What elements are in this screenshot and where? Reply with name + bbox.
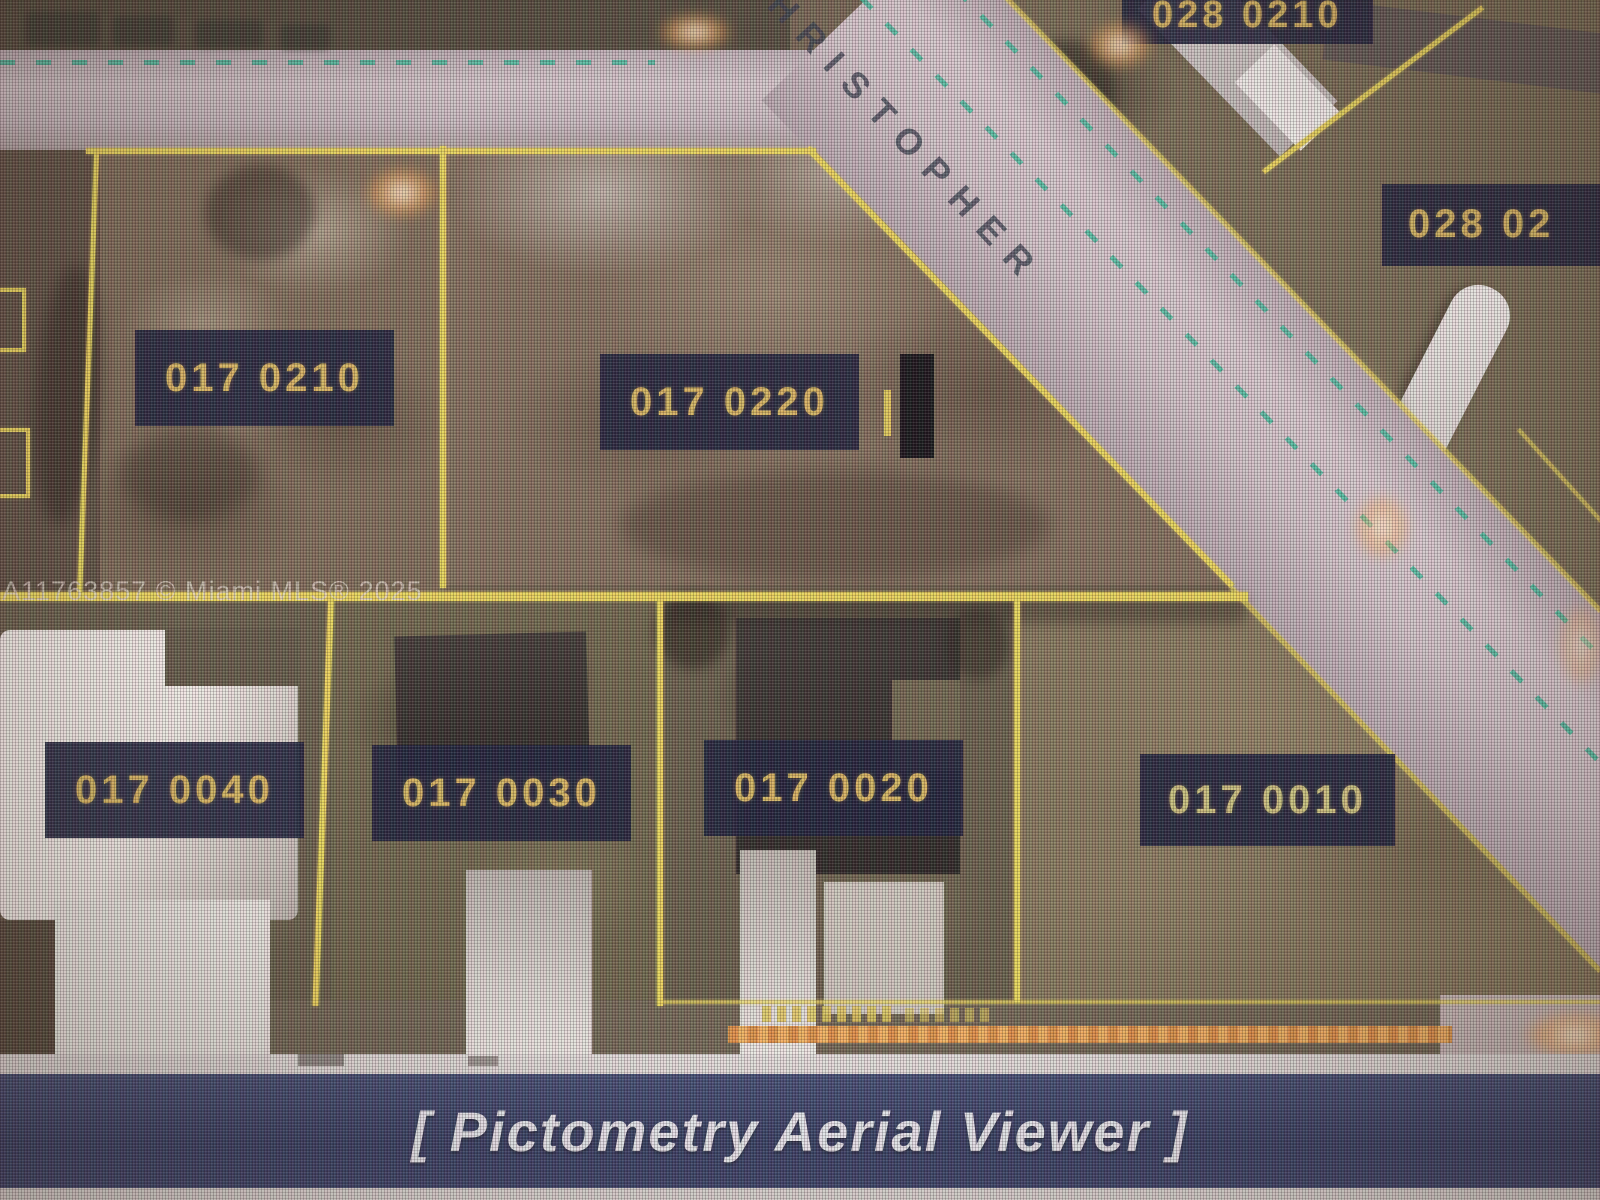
mls-watermark: A11763857 © Miami MLS® 2025 bbox=[2, 576, 423, 607]
patio-patch bbox=[824, 882, 944, 1014]
banner-bottom-strip bbox=[0, 1188, 1600, 1200]
glare-flare bbox=[1085, 20, 1155, 70]
viewer-title-banner: [ Pictometry Aerial Viewer ] bbox=[0, 1074, 1600, 1188]
road-centerline-dashed bbox=[0, 60, 655, 65]
dirt-shadow bbox=[620, 470, 1050, 580]
faint-street-text bbox=[25, 12, 100, 46]
parcel-line bbox=[86, 148, 816, 154]
driveway bbox=[466, 870, 592, 1070]
parcel-label-017-0220[interactable]: 017 0220 bbox=[600, 354, 859, 450]
parcel-line bbox=[1014, 600, 1020, 1002]
highlighted-road-segment bbox=[728, 1026, 1452, 1043]
text-caret bbox=[884, 390, 891, 436]
parcel-line bbox=[440, 146, 446, 588]
dimension-tick-marks bbox=[905, 1008, 995, 1022]
parcel-label-028-0210[interactable]: 028 0210 bbox=[1122, 0, 1373, 44]
cursor-block bbox=[900, 354, 934, 458]
glare-flare bbox=[362, 165, 442, 220]
yard-shadow bbox=[0, 920, 55, 1070]
parcel-label-017-0040[interactable]: 017 0040 bbox=[45, 742, 304, 838]
dirt-shadow bbox=[205, 165, 315, 260]
parcel-outline-partial bbox=[0, 428, 30, 498]
faint-street-text bbox=[112, 16, 174, 46]
banner-top-strip bbox=[0, 1054, 1600, 1074]
parcel-label-017-0210[interactable]: 017 0210 bbox=[135, 330, 394, 426]
glare-flare bbox=[655, 12, 735, 52]
window-edge-mark bbox=[468, 1056, 498, 1066]
faint-street-text bbox=[280, 24, 330, 50]
road-horizontal bbox=[0, 50, 830, 154]
dimension-tick-marks bbox=[762, 1006, 897, 1022]
tree-shadow-notch bbox=[165, 628, 300, 686]
parcel-label-017-0020[interactable]: 017 0020 bbox=[704, 740, 963, 836]
parcel-outline-partial bbox=[0, 288, 26, 352]
parcel-label-017-0010[interactable]: 017 0010 bbox=[1140, 754, 1395, 846]
faint-street-text bbox=[195, 20, 263, 48]
parcel-label-017-0030[interactable]: 017 0030 bbox=[372, 745, 631, 841]
viewer-title-text: [ Pictometry Aerial Viewer ] bbox=[412, 1099, 1189, 1164]
pictometry-map[interactable]: CHRISTOPHER 017 0210 017 0220 028 0210 0… bbox=[0, 0, 1600, 1200]
parcel-line bbox=[657, 600, 663, 1006]
glare-flare bbox=[1352, 492, 1412, 562]
parcel-line bbox=[658, 1000, 1600, 1004]
building-white-annex bbox=[52, 900, 270, 1068]
dirt-shadow bbox=[120, 430, 260, 520]
parcel-label-028-02[interactable]: 028 02 bbox=[1382, 184, 1600, 266]
glare-flare bbox=[1556, 600, 1600, 690]
window-edge-mark bbox=[298, 1054, 344, 1066]
